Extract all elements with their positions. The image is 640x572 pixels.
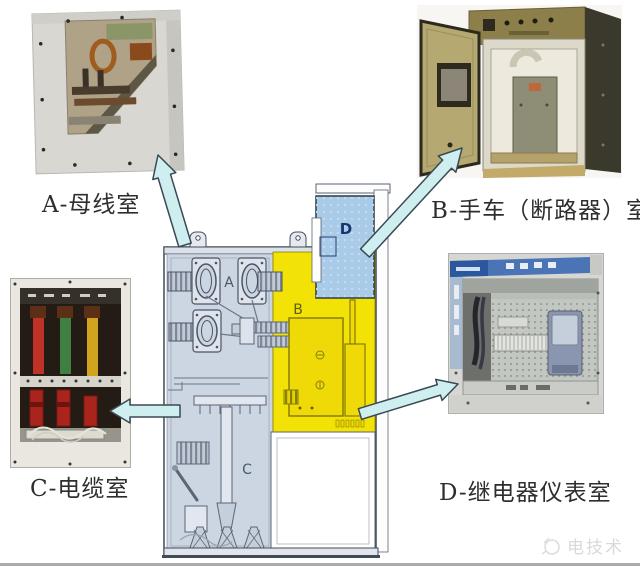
watermark: 电技术 (540, 533, 624, 558)
label-cable-room: C-电缆室 (30, 469, 129, 503)
label-busbar-room: A-母线室 (42, 185, 140, 219)
lifting-lug (290, 232, 306, 247)
lower-right-compartment (271, 432, 375, 550)
watermark-text: 电技术 (567, 533, 624, 558)
cabinet-letter-a: A (224, 275, 234, 291)
label-breaker-room: B-手车（断路器）室 (431, 191, 640, 225)
cabinet-base (162, 548, 380, 558)
label-relay-room: D-继电器仪表室 (439, 473, 612, 507)
cabinet-letter-d: D (340, 220, 352, 238)
bottom-divider (0, 563, 640, 566)
cable-clamp-cones (189, 527, 265, 551)
breaker-truck (284, 300, 365, 427)
cabinet-letter-c: C (242, 462, 252, 478)
spark-logo-icon (540, 535, 562, 557)
cabinet-letter-b: B (293, 302, 303, 318)
switchgear-compartments-figure: A B C D A-母线室 B-手车（断路器）室 C-电缆室 D-继电器仪表室 … (0, 0, 640, 572)
arrow-to-busbar-photo (153, 155, 191, 247)
lifting-lug (190, 232, 206, 247)
